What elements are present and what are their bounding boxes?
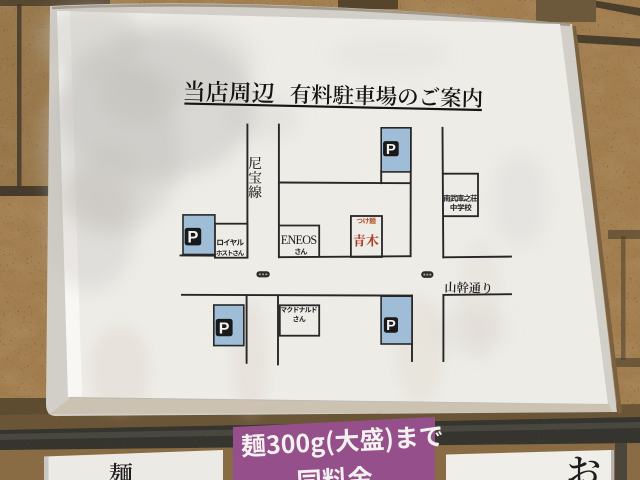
svg-text:P: P [187,229,198,247]
svg-text:P: P [219,320,230,337]
svg-text:ENEOS: ENEOS [281,233,318,247]
svg-text:P: P [386,318,396,334]
svg-text:P: P [386,141,396,158]
